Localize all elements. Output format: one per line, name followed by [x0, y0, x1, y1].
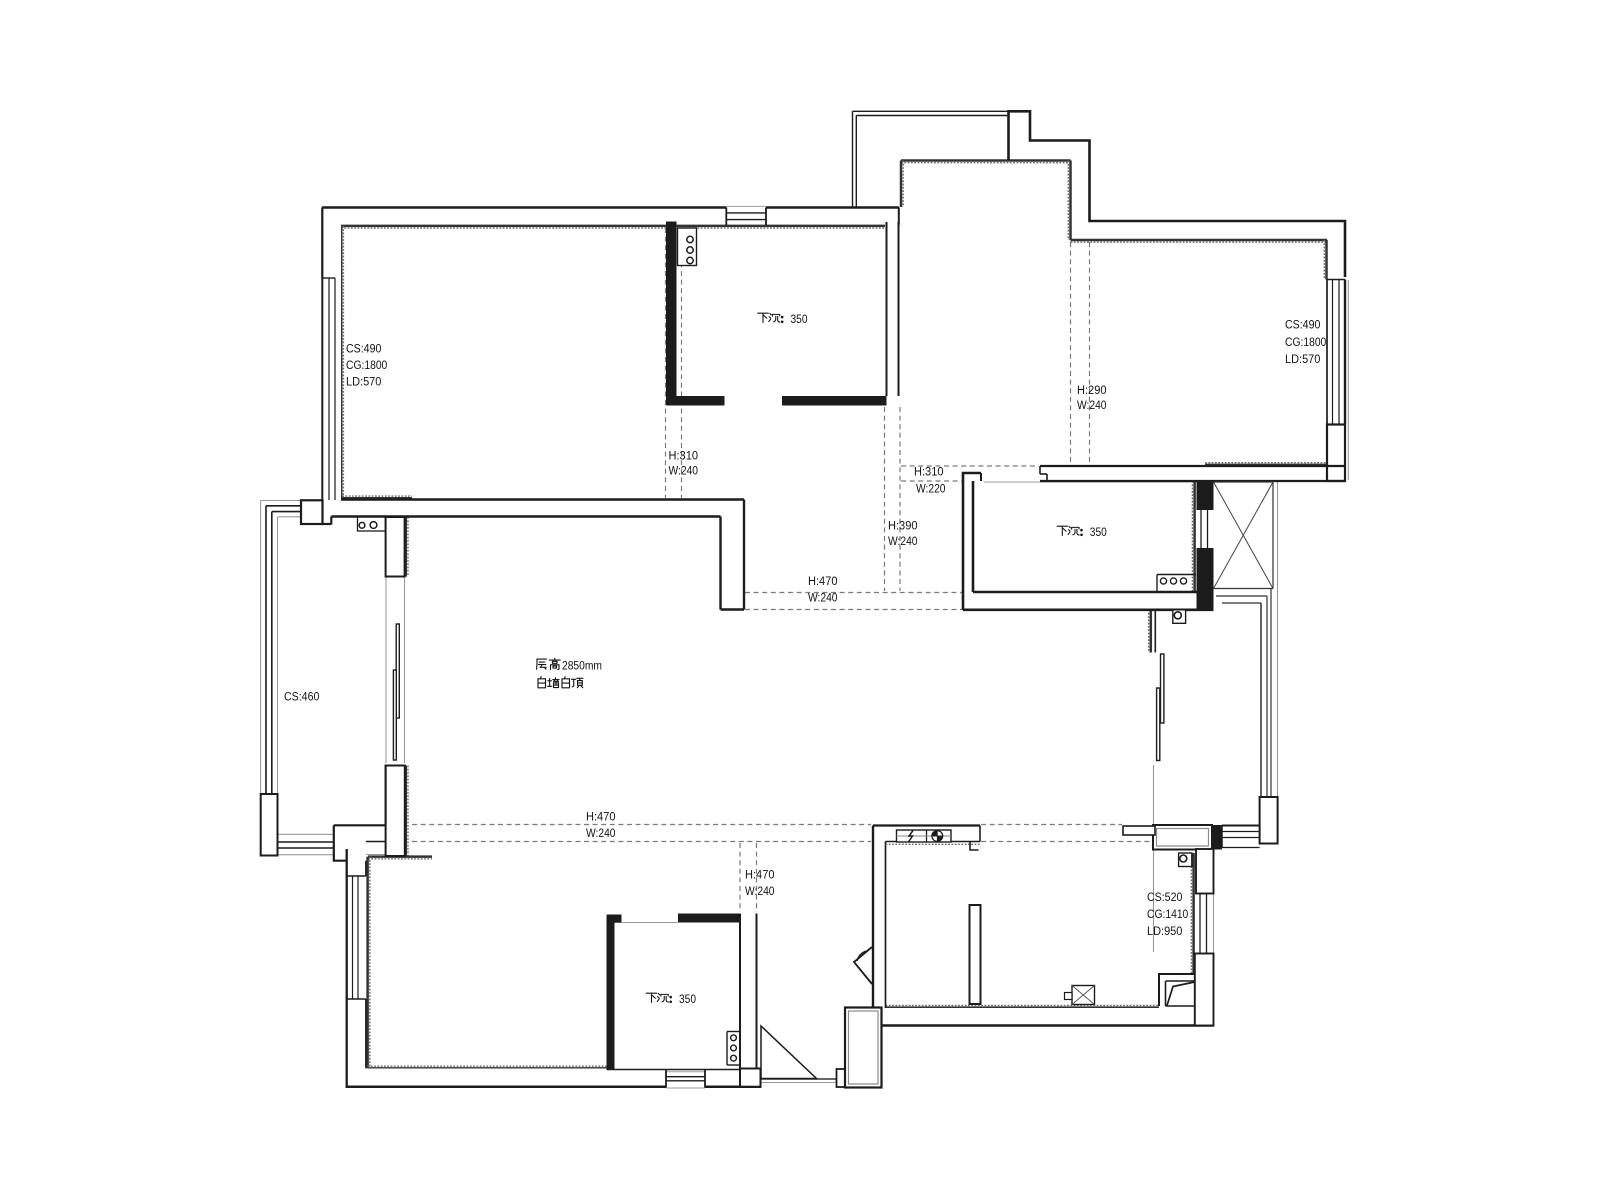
svg-text:350: 350 — [791, 312, 808, 326]
svg-text:CS:490: CS:490 — [1285, 318, 1321, 332]
svg-text:350: 350 — [679, 992, 696, 1006]
svg-text:W:240: W:240 — [669, 464, 699, 478]
svg-text:CG:1800: CG:1800 — [346, 358, 387, 372]
svg-text:LD:950: LD:950 — [1147, 924, 1183, 938]
svg-text:CG:1410: CG:1410 — [1147, 907, 1188, 921]
svg-text:H:290: H:290 — [1077, 383, 1107, 397]
svg-text:2850mm: 2850mm — [562, 659, 602, 673]
svg-text:W:240: W:240 — [1077, 398, 1107, 412]
svg-text:CG:1800: CG:1800 — [1285, 335, 1326, 349]
svg-text:LD:570: LD:570 — [1285, 352, 1321, 366]
svg-text:H:470: H:470 — [808, 574, 838, 588]
svg-text:CS:520: CS:520 — [1147, 890, 1183, 904]
svg-text:H:310: H:310 — [669, 449, 699, 463]
svg-text:W:240: W:240 — [745, 884, 775, 898]
svg-text:LD:570: LD:570 — [346, 375, 382, 389]
svg-text:350: 350 — [1090, 525, 1107, 539]
svg-text:H:470: H:470 — [586, 810, 616, 824]
svg-text:W:220: W:220 — [916, 482, 946, 496]
svg-text:H:390: H:390 — [888, 519, 918, 533]
svg-text:H:310: H:310 — [914, 465, 944, 479]
svg-text:H:470: H:470 — [745, 868, 775, 882]
svg-text:W:240: W:240 — [808, 591, 838, 605]
svg-text:W:240: W:240 — [888, 534, 918, 548]
svg-text:CS:460: CS:460 — [284, 690, 320, 704]
svg-text:CS:490: CS:490 — [346, 342, 382, 356]
svg-text:W:240: W:240 — [586, 826, 616, 840]
